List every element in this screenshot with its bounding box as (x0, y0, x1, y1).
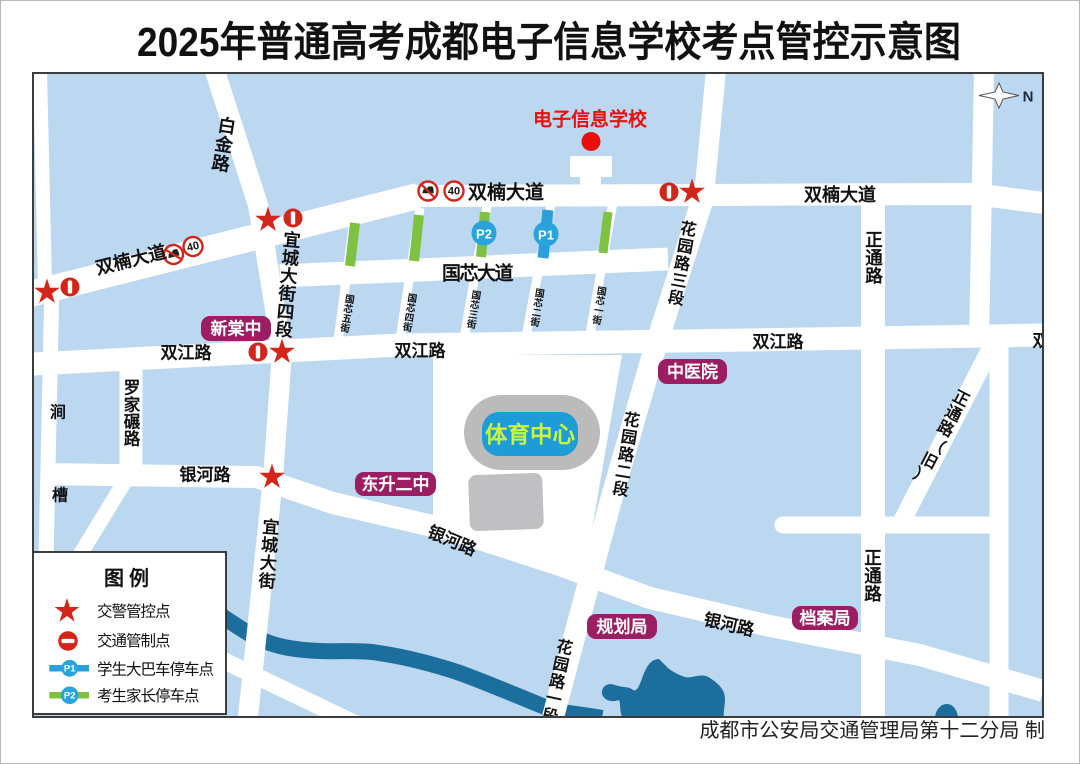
svg-text:2025年普通高考成都电子信息学校考点管控示意图: 2025年普通高考成都电子信息学校考点管控示意图 (137, 19, 961, 65)
svg-text:规划局: 规划局 (597, 617, 648, 637)
svg-text:双江路: 双江路 (161, 343, 213, 363)
svg-text:槽: 槽 (52, 486, 68, 505)
svg-text:P1: P1 (538, 228, 554, 243)
svg-text:双江路: 双江路 (753, 332, 805, 352)
svg-text:P1: P1 (64, 664, 76, 675)
svg-text:中医院: 中医院 (667, 362, 718, 382)
svg-text:银河路: 银河路 (180, 465, 232, 485)
svg-text:图例: 图例 (104, 566, 154, 590)
svg-text:电子信息学校: 电子信息学校 (533, 108, 648, 131)
svg-text:交通管制点: 交通管制点 (97, 632, 170, 650)
svg-text:学生大巴车停车点: 学生大巴车停车点 (97, 661, 214, 679)
svg-text:双江路: 双江路 (395, 341, 447, 361)
svg-text:档案局: 档案局 (800, 608, 851, 628)
svg-text:N: N (1023, 89, 1034, 106)
svg-text:40: 40 (448, 186, 460, 198)
svg-text:P2: P2 (64, 691, 76, 702)
svg-text:成都市公安局交通管理局第十二分局 制: 成都市公安局交通管理局第十二分局 制 (699, 719, 1045, 742)
svg-text:正通路: 正通路 (865, 230, 883, 286)
svg-text:国芯大道: 国芯大道 (442, 262, 514, 285)
svg-text:涧: 涧 (50, 403, 66, 422)
svg-text:新棠中: 新棠中 (211, 319, 262, 339)
svg-text:双楠大道: 双楠大道 (468, 181, 544, 204)
svg-text:双楠大道: 双楠大道 (804, 184, 876, 205)
svg-text:考生家长停车点: 考生家长停车点 (97, 687, 199, 705)
svg-text:罗家碾路: 罗家碾路 (124, 379, 141, 449)
svg-text:正通路: 正通路 (864, 548, 882, 604)
svg-text:P2: P2 (476, 227, 492, 242)
svg-text:东升二中: 东升二中 (362, 474, 430, 494)
svg-text:体育中心: 体育中心 (485, 422, 576, 448)
svg-text:交警管控点: 交警管控点 (97, 603, 170, 621)
